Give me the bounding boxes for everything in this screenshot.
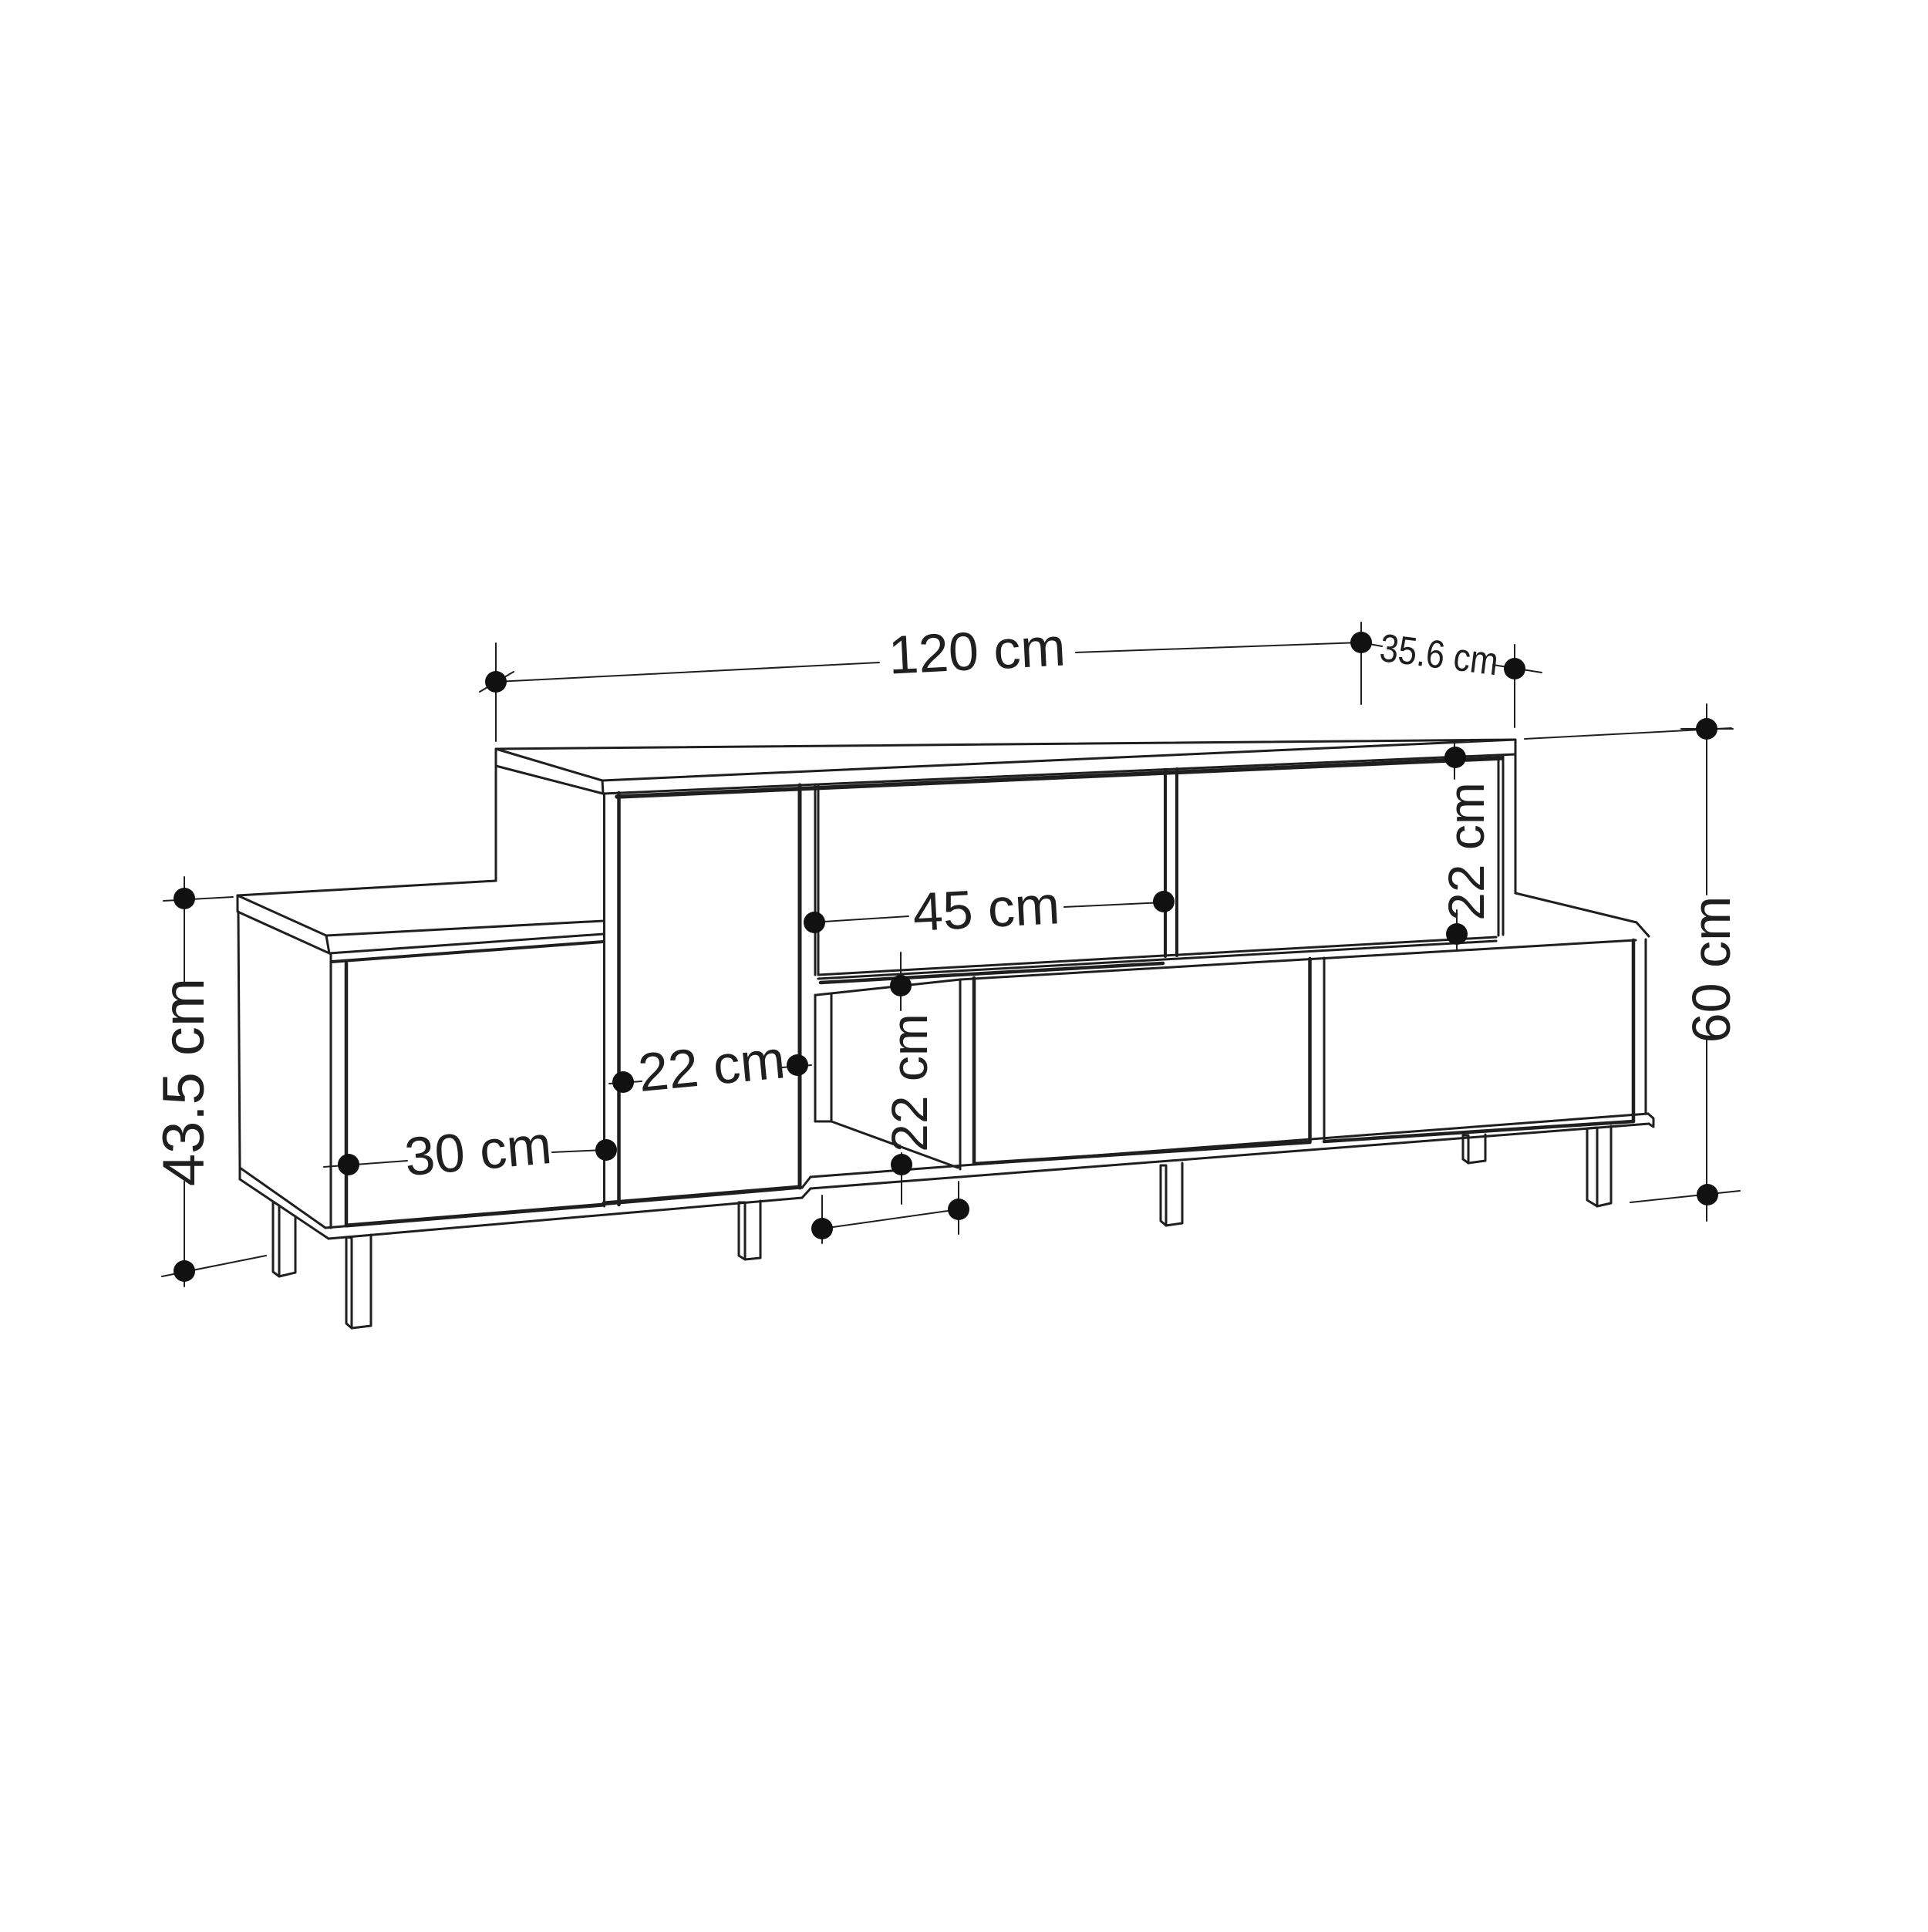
svg-text:35.6 cm: 35.6 cm: [1377, 626, 1501, 684]
svg-text:45 cm: 45 cm: [912, 875, 1061, 942]
svg-text:30 cm: 30 cm: [403, 1114, 554, 1187]
svg-text:120 cm: 120 cm: [887, 616, 1067, 685]
svg-text:22 cm: 22 cm: [635, 1029, 787, 1103]
svg-text:22 cm: 22 cm: [881, 1013, 938, 1152]
svg-text:43.5 cm: 43.5 cm: [151, 978, 217, 1186]
svg-text:60 cm: 60 cm: [1681, 896, 1741, 1044]
svg-text:22 cm: 22 cm: [1438, 782, 1495, 921]
